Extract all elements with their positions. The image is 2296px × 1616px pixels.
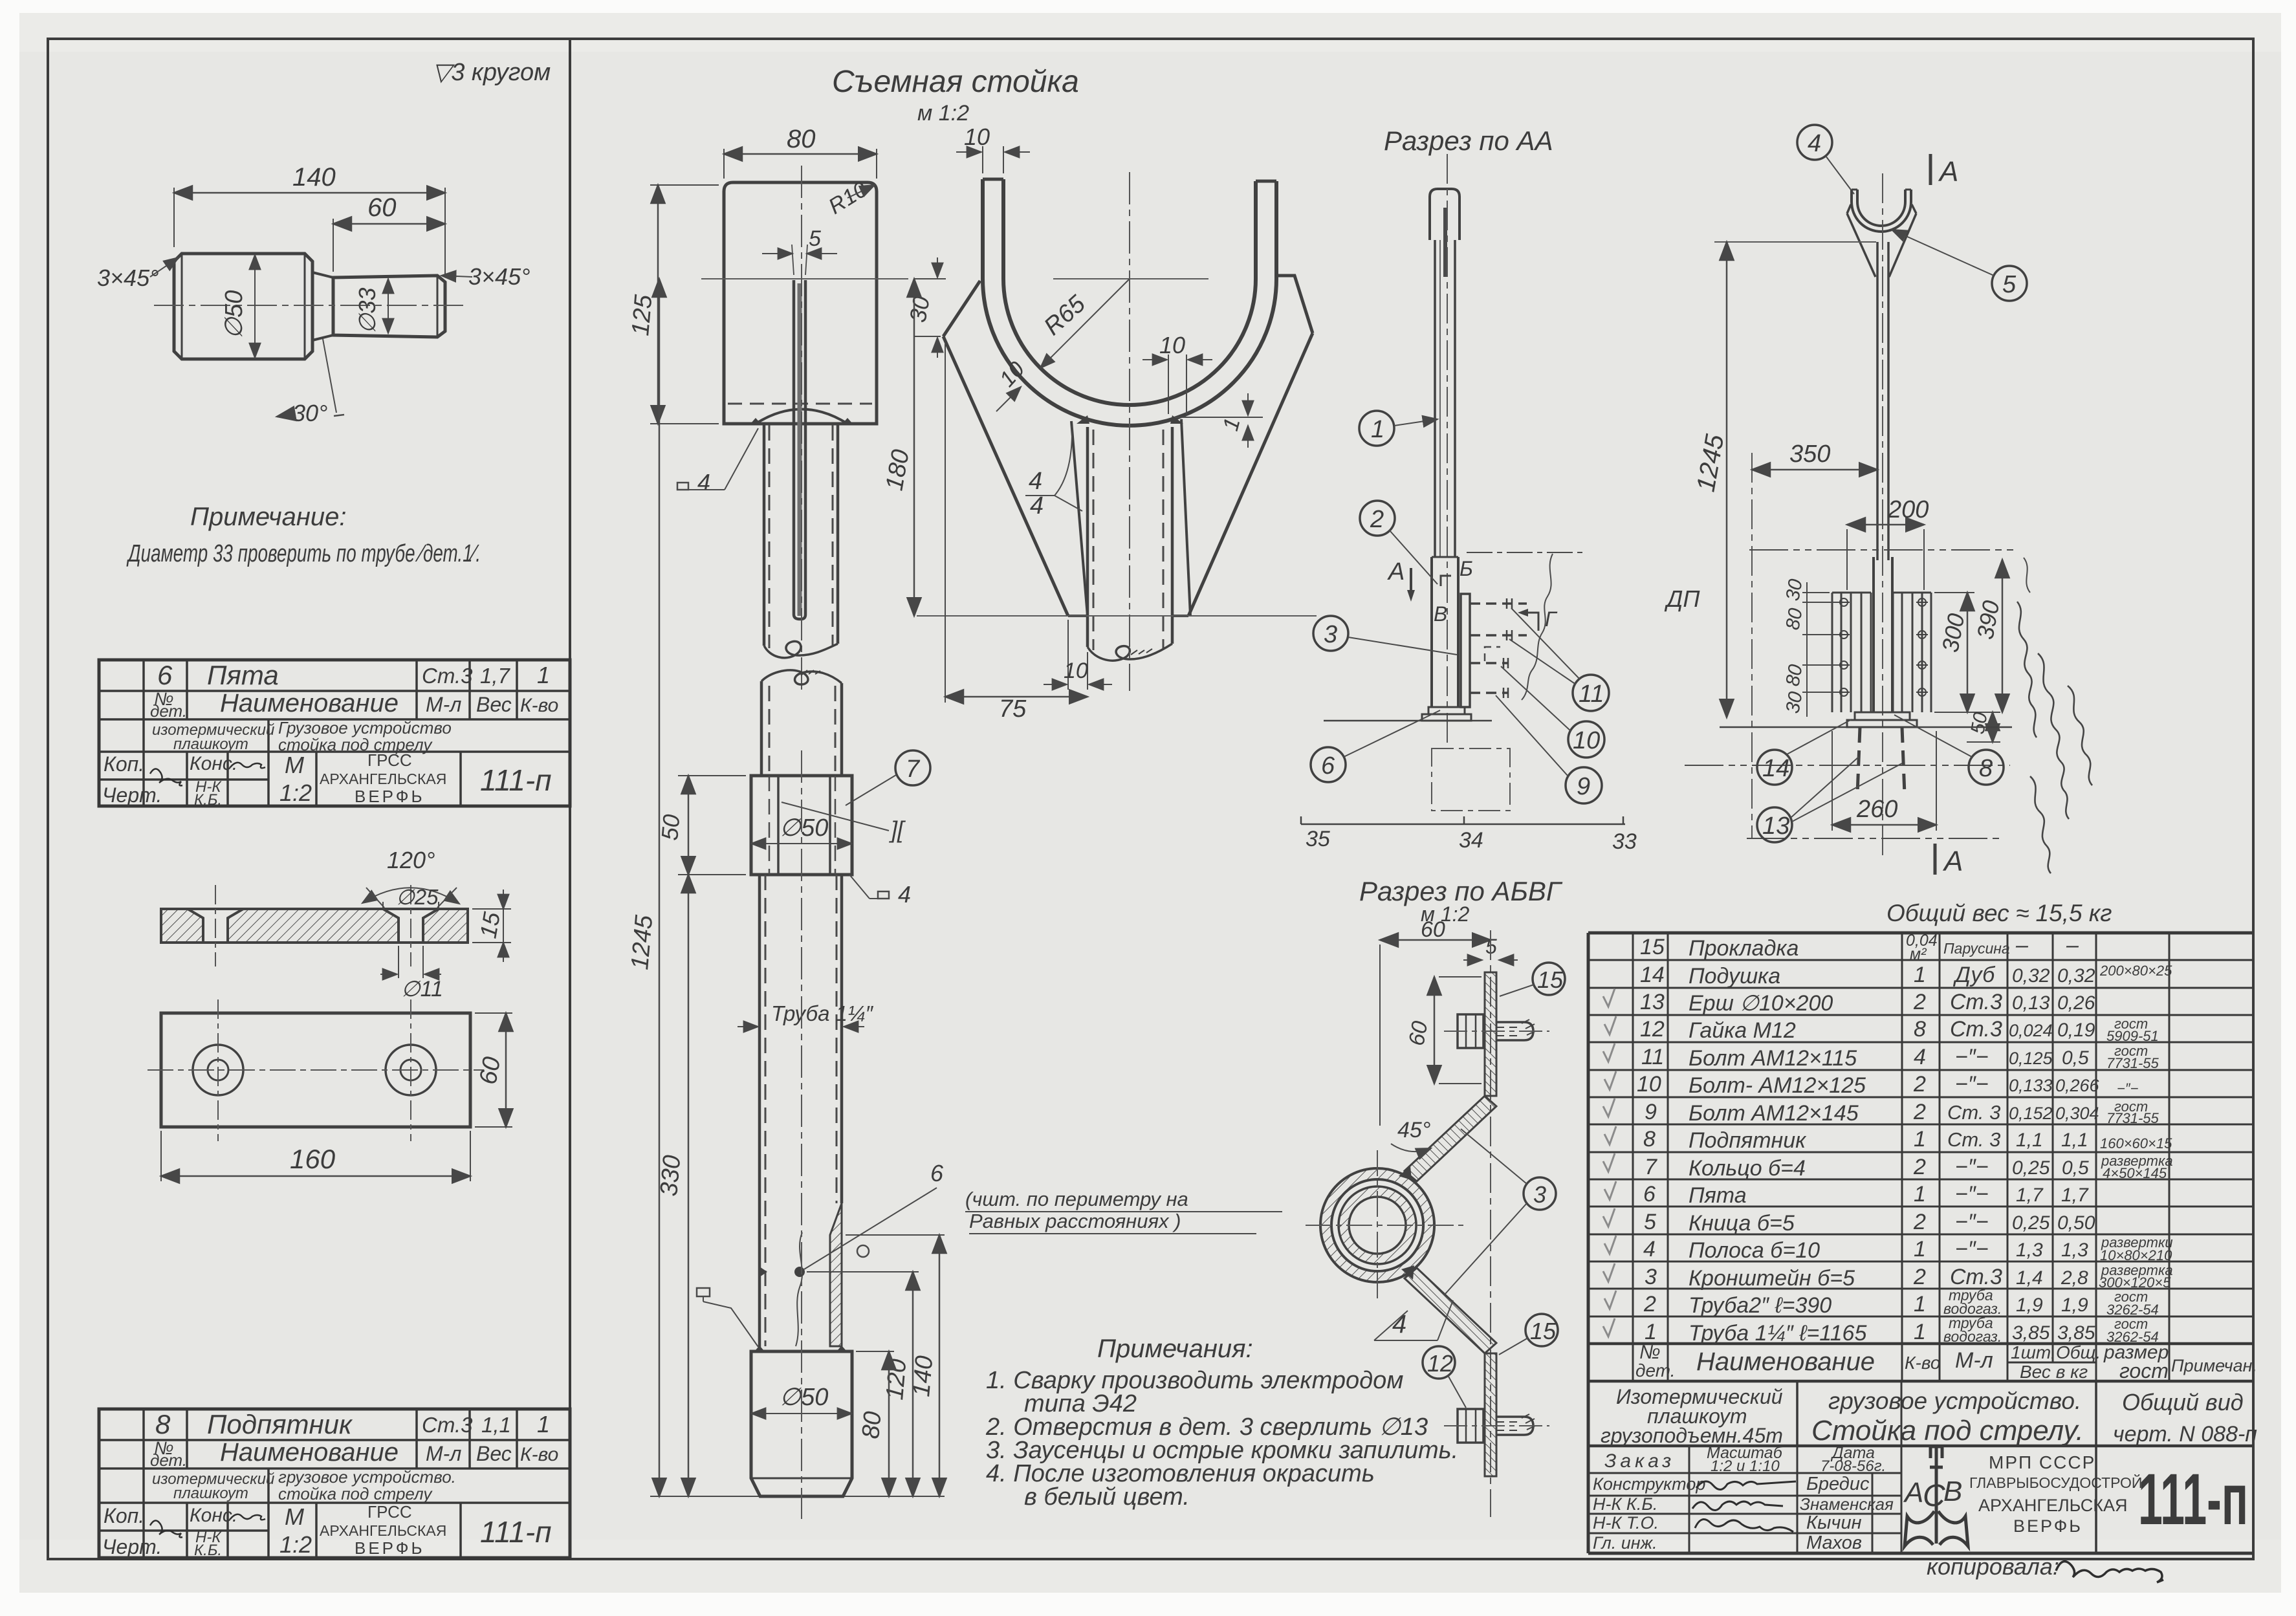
svg-text:2,8: 2,8: [2061, 1267, 2088, 1289]
svg-text:6: 6: [1321, 752, 1335, 780]
svg-text:0,266: 0,266: [2055, 1076, 2100, 1095]
svg-text:Стойка под стрелу.: Стойка под стрелу.: [1811, 1415, 2084, 1447]
svg-text:11: 11: [1641, 1045, 1664, 1069]
svg-text:60: 60: [1404, 1019, 1432, 1047]
svg-text:111-п: 111-п: [480, 1515, 552, 1549]
svg-text:1: 1: [537, 662, 550, 688]
svg-text:0,125: 0,125: [2009, 1049, 2053, 1068]
svg-text:ДП: ДП: [1664, 585, 1700, 612]
svg-text:80: 80: [1782, 606, 1806, 631]
svg-text:3: 3: [1324, 621, 1337, 648]
svg-text:А: А: [1942, 846, 1963, 877]
svg-text:Б: Б: [1460, 557, 1473, 580]
svg-text:−″−: −″−: [1955, 1182, 1989, 1207]
svg-text:7731-55: 7731-55: [2106, 1055, 2159, 1071]
svg-text:4: 4: [1643, 1237, 1656, 1261]
svg-text:7: 7: [906, 756, 921, 783]
svg-text:11: 11: [1579, 681, 1604, 708]
svg-text:черт. N 088-п: черт. N 088-п: [2113, 1422, 2257, 1447]
svg-text:∅50: ∅50: [780, 1384, 828, 1411]
svg-text:Ст.3: Ст.3: [1950, 990, 2002, 1014]
svg-text:0,304: 0,304: [2055, 1104, 2099, 1123]
svg-text:м²: м²: [1910, 945, 1927, 963]
svg-text:стойка под стрелу: стойка под стрелу: [278, 1484, 433, 1503]
svg-text:Общий вид: Общий вид: [2122, 1389, 2244, 1415]
svg-text:м 1:2: м 1:2: [917, 101, 969, 126]
svg-text:Конструктор: Конструктор: [1593, 1474, 1705, 1494]
svg-text:М: М: [285, 752, 304, 778]
svg-text:120°: 120°: [387, 847, 435, 873]
svg-text:111-п: 111-п: [2138, 1459, 2248, 1540]
svg-text:10: 10: [1573, 727, 1600, 754]
svg-text:1,9: 1,9: [2016, 1294, 2043, 1316]
svg-text:В: В: [1434, 602, 1447, 626]
svg-text:дет.: дет.: [150, 701, 187, 721]
svg-text:МРП СССР: МРП СССР: [1989, 1452, 2095, 1472]
svg-text:1:2: 1:2: [279, 1531, 312, 1558]
svg-text:60: 60: [1421, 917, 1445, 942]
svg-text:200×80×25: 200×80×25: [2099, 963, 2172, 979]
svg-text:ВЕРФЬ: ВЕРФЬ: [2013, 1516, 2083, 1536]
svg-text:Подушка: Подушка: [1689, 964, 1780, 988]
svg-text:14: 14: [1762, 755, 1789, 782]
svg-text:1,1: 1,1: [481, 1413, 511, 1437]
svg-text:Наименование: Наименование: [220, 1438, 399, 1467]
svg-text:Г: Г: [1545, 607, 1558, 631]
svg-text:0,152: 0,152: [2009, 1104, 2053, 1123]
svg-text:2: 2: [1643, 1292, 1656, 1316]
svg-text:Вес: Вес: [476, 693, 512, 716]
svg-text:0,50: 0,50: [2057, 1212, 2095, 1234]
svg-text:К.Б.: К.Б.: [194, 1542, 222, 1559]
svg-text:1:2: 1:2: [279, 780, 312, 806]
svg-text:Дуб: Дуб: [1952, 963, 1996, 987]
svg-text:6: 6: [930, 1160, 944, 1186]
svg-text:14: 14: [1640, 963, 1665, 987]
svg-text:Общ.: Общ.: [2056, 1342, 2101, 1362]
svg-text:75: 75: [999, 695, 1027, 723]
svg-text:5: 5: [2002, 271, 2017, 298]
svg-text:350: 350: [1789, 441, 1830, 468]
svg-text:1шт.: 1шт.: [2011, 1342, 2056, 1362]
svg-text:Ст. 3: Ст. 3: [1947, 1101, 2000, 1124]
svg-text:К-во: К-во: [1905, 1353, 1940, 1373]
svg-text:2: 2: [1913, 1265, 1926, 1289]
svg-text:М-л: М-л: [426, 1442, 461, 1465]
svg-text:Примечан.: Примечан.: [2171, 1356, 2257, 1375]
svg-text:3,85: 3,85: [2012, 1322, 2050, 1344]
svg-text:33: 33: [1612, 829, 1637, 854]
svg-text:Пята: Пята: [207, 660, 279, 690]
svg-text:ГРСС: ГРСС: [367, 1502, 412, 1522]
svg-text:1: 1: [1371, 416, 1384, 443]
svg-text:2: 2: [1913, 1155, 1926, 1179]
svg-text:К-во: К-во: [520, 1444, 558, 1465]
svg-text:7: 7: [1645, 1155, 1657, 1179]
svg-text:Подпятник: Подпятник: [1689, 1128, 1807, 1153]
svg-text:−″−: −″−: [1955, 1072, 1989, 1097]
svg-text:8: 8: [1914, 1017, 1926, 1042]
svg-text:2: 2: [1370, 506, 1384, 533]
svg-text:А: А: [1938, 156, 1958, 188]
svg-text:0,13: 0,13: [2012, 992, 2050, 1014]
svg-text:Ст.3: Ст.3: [1950, 1265, 2002, 1289]
svg-text:грузовое устройство.: грузовое устройство.: [1828, 1388, 2081, 1414]
svg-text:1,1: 1,1: [2061, 1130, 2088, 1151]
svg-text:ВЕРФЬ: ВЕРФЬ: [355, 787, 425, 806]
svg-text:0,133: 0,133: [2009, 1076, 2053, 1095]
svg-text:копировала:: копировала:: [1927, 1553, 2059, 1580]
svg-text:3: 3: [1533, 1181, 1546, 1208]
svg-text:М: М: [285, 1503, 304, 1530]
svg-text:0,024: 0,024: [2009, 1021, 2053, 1040]
svg-text:0,32: 0,32: [2012, 965, 2050, 987]
svg-text:−″−: −″−: [1955, 1045, 1989, 1069]
svg-text:ГРСС: ГРСС: [367, 750, 412, 770]
svg-text:К-во: К-во: [520, 695, 558, 716]
svg-text:водогаз.: водогаз.: [1943, 1328, 2002, 1345]
svg-text:8: 8: [1643, 1127, 1656, 1152]
svg-text:1: 1: [1645, 1320, 1657, 1344]
svg-text:4: 4: [1914, 1045, 1926, 1069]
svg-text:125: 125: [627, 293, 657, 337]
svg-text:Конс.: Конс.: [190, 1505, 237, 1526]
svg-text:Примечания:: Примечания:: [1097, 1335, 1253, 1363]
svg-text:2: 2: [1913, 1210, 1926, 1234]
svg-text:111-п: 111-п: [480, 763, 552, 797]
svg-text:Разрез по АБВГ: Разрез по АБВГ: [1359, 876, 1563, 906]
svg-text:дет.: дет.: [1635, 1360, 1676, 1381]
svg-text:10: 10: [1064, 659, 1088, 683]
svg-text:Гайка М12: Гайка М12: [1689, 1018, 1796, 1043]
svg-text:Гл. инж.: Гл. инж.: [1593, 1533, 1657, 1553]
svg-text:0,25: 0,25: [2012, 1212, 2050, 1234]
svg-text:1: 1: [1914, 1127, 1926, 1152]
svg-text:0,32: 0,32: [2057, 965, 2095, 987]
svg-text:ВЕРФЬ: ВЕРФЬ: [355, 1538, 425, 1558]
svg-text:плашкоут: плашкоут: [173, 736, 248, 753]
svg-text:1: 1: [537, 1411, 550, 1437]
svg-text:6: 6: [1643, 1182, 1656, 1207]
svg-text:Болт- АМ12×125: Болт- АМ12×125: [1689, 1073, 1866, 1098]
svg-text:0,26: 0,26: [2057, 992, 2095, 1014]
svg-text:5: 5: [1644, 1210, 1656, 1234]
svg-text:1,7: 1,7: [2061, 1185, 2089, 1206]
svg-text:Болт АМ12×115: Болт АМ12×115: [1689, 1046, 1857, 1071]
svg-text:Черт.: Черт.: [102, 1535, 162, 1558]
svg-text:Пята: Пята: [1689, 1183, 1747, 1208]
svg-text:35: 35: [1306, 827, 1330, 851]
svg-text:Вес в кг: Вес в кг: [2020, 1362, 2088, 1382]
svg-text:Труба2″ ℓ=390: Труба2″ ℓ=390: [1689, 1293, 1831, 1318]
svg-text:1,7: 1,7: [480, 664, 511, 688]
svg-text:Труба 1¼″: Труба 1¼″: [771, 1001, 874, 1025]
svg-text:Примечание:: Примечание:: [190, 503, 346, 531]
svg-text:Вес: Вес: [476, 1442, 512, 1465]
svg-text:Наименование: Наименование: [220, 689, 399, 717]
svg-text:Заказ: Заказ: [1604, 1450, 1675, 1472]
svg-text:Кольцо б=4: Кольцо б=4: [1689, 1156, 1806, 1181]
svg-text:50: 50: [1967, 710, 1991, 736]
svg-text:∅50: ∅50: [221, 290, 248, 339]
svg-text:3×45°: 3×45°: [468, 263, 530, 290]
svg-text:80: 80: [857, 1410, 887, 1440]
svg-text:1,3: 1,3: [2061, 1239, 2088, 1261]
svg-text:50: 50: [656, 813, 684, 841]
svg-text:1245: 1245: [626, 913, 658, 971]
svg-text:1:2 и 1:10: 1:2 и 1:10: [1711, 1458, 1780, 1475]
svg-text:80: 80: [787, 125, 816, 153]
svg-text:Коп.: Коп.: [104, 752, 144, 776]
svg-text:Н-К К.Б.: Н-К К.Б.: [1593, 1494, 1657, 1514]
svg-text:30: 30: [904, 294, 935, 325]
svg-text:Н-К Т.О.: Н-К Т.О.: [1593, 1513, 1659, 1533]
svg-text:30: 30: [1782, 690, 1806, 715]
svg-text:Коп.: Коп.: [104, 1504, 144, 1527]
svg-text:15: 15: [1537, 966, 1564, 993]
svg-text:–: –: [2066, 933, 2079, 957]
svg-text:160×60×15: 160×60×15: [2100, 1135, 2172, 1152]
svg-text:15: 15: [1530, 1318, 1557, 1344]
svg-text:Труба 1¼″ ℓ=1165: Труба 1¼″ ℓ=1165: [1689, 1321, 1866, 1346]
svg-text:1,1: 1,1: [2016, 1130, 2043, 1151]
svg-text:140: 140: [292, 163, 336, 191]
svg-text:(чшт. по периметру на: (чшт. по периметру на: [965, 1188, 1188, 1210]
svg-text:60: 60: [475, 1055, 507, 1087]
svg-text:∅25: ∅25: [396, 885, 439, 909]
svg-text:А: А: [1387, 558, 1405, 585]
svg-text:1: 1: [1914, 1182, 1926, 1207]
svg-text:Парусина: Парусина: [1943, 940, 2010, 957]
svg-text:К.Б.: К.Б.: [194, 791, 222, 809]
svg-text:13: 13: [1640, 990, 1665, 1014]
svg-text:Ст. 3: Ст. 3: [1947, 1128, 2000, 1151]
svg-text:ГЛАВРЫБОСУДОСТРОЙ: ГЛАВРЫБОСУДОСТРОЙ: [1969, 1474, 2142, 1491]
svg-text:10: 10: [964, 124, 990, 150]
svg-text:2: 2: [1913, 1072, 1926, 1097]
svg-text:260: 260: [1856, 796, 1897, 823]
svg-text:Черт.: Черт.: [102, 783, 162, 807]
svg-text:1: 1: [1914, 1292, 1926, 1316]
svg-text:Наименование: Наименование: [1696, 1348, 1875, 1376]
svg-text:Ст.3: Ст.3: [422, 1413, 473, 1437]
svg-text:АРХАНГЕЛЬСКАЯ: АРХАНГЕЛЬСКАЯ: [320, 1522, 446, 1539]
svg-text:Полоса б=10: Полоса б=10: [1689, 1238, 1820, 1263]
svg-text:34: 34: [1459, 828, 1483, 853]
svg-text:1: 1: [1914, 1237, 1926, 1261]
svg-text:9: 9: [1645, 1100, 1657, 1124]
svg-text:2: 2: [1913, 1100, 1926, 1124]
svg-text:в белый цвет.: в белый цвет.: [1024, 1483, 1190, 1511]
svg-text:10: 10: [1637, 1072, 1661, 1097]
svg-text:гост: гост: [2119, 1359, 2169, 1382]
svg-text:10×80×210: 10×80×210: [2100, 1247, 2172, 1263]
svg-text:−″−: −″−: [1955, 1210, 1989, 1234]
svg-text:Махов: Махов: [1806, 1533, 1862, 1553]
svg-text:Равных расстояниях ): Равных расстояниях ): [969, 1210, 1181, 1232]
svg-text:Прокладка: Прокладка: [1689, 936, 1799, 961]
svg-text:15: 15: [1640, 935, 1665, 959]
svg-text:12: 12: [1640, 1017, 1665, 1042]
svg-text:4×50×145: 4×50×145: [2103, 1165, 2167, 1181]
svg-text:АРХАНГЕЛЬСКАЯ: АРХАНГЕЛЬСКАЯ: [1978, 1496, 2128, 1515]
svg-text:4: 4: [1808, 130, 1821, 157]
svg-text:Кронштейн б=5: Кронштейн б=5: [1689, 1266, 1855, 1291]
svg-text:−″−: −″−: [1955, 1237, 1989, 1261]
svg-text:15: 15: [475, 910, 506, 941]
svg-text:60: 60: [367, 193, 397, 222]
svg-text:][: ][: [889, 816, 906, 843]
svg-text:дет.: дет.: [150, 1450, 187, 1470]
svg-text:10: 10: [1159, 332, 1185, 358]
svg-text:4: 4: [697, 469, 710, 496]
svg-text:0,5: 0,5: [2062, 1157, 2089, 1179]
svg-text:∅11: ∅11: [401, 977, 443, 1001]
svg-text:Ст.3: Ст.3: [422, 664, 473, 688]
svg-text:Разрез по АА: Разрез по АА: [1384, 126, 1553, 156]
svg-text:−″−: −″−: [1955, 1155, 1989, 1179]
svg-text:1: 1: [1914, 963, 1926, 987]
svg-text:200: 200: [1887, 496, 1929, 523]
svg-text:45°: 45°: [1397, 1118, 1430, 1142]
svg-text:5: 5: [809, 226, 821, 251]
svg-text:М-л: М-л: [1955, 1348, 1993, 1373]
svg-text:1: 1: [1914, 1320, 1926, 1344]
svg-text:Конс.: Конс.: [190, 753, 237, 774]
svg-text:В: В: [1943, 1476, 1962, 1507]
svg-text:3,85: 3,85: [2057, 1322, 2095, 1344]
svg-text:4: 4: [1030, 492, 1044, 519]
svg-text:120: 120: [881, 1358, 912, 1401]
svg-text:∅50: ∅50: [780, 814, 828, 842]
svg-text:4: 4: [898, 881, 911, 908]
svg-text:80: 80: [1782, 662, 1806, 688]
svg-text:0,25: 0,25: [2012, 1157, 2050, 1179]
svg-text:160: 160: [290, 1144, 336, 1174]
svg-text:1,3: 1,3: [2016, 1239, 2043, 1261]
svg-text:5909-51: 5909-51: [2106, 1028, 2159, 1044]
svg-text:Кница б=5: Кница б=5: [1689, 1211, 1795, 1236]
svg-text:Знаменская: Знаменская: [1800, 1494, 1894, 1514]
svg-text:1,9: 1,9: [2061, 1294, 2088, 1316]
svg-text:Подпятник: Подпятник: [207, 1409, 353, 1439]
svg-text:–: –: [2015, 933, 2029, 957]
svg-text:6: 6: [157, 660, 173, 690]
svg-text:8: 8: [1979, 755, 1993, 782]
svg-text:4: 4: [1029, 468, 1042, 495]
svg-text:Съемная стойка: Съемная стойка: [832, 65, 1079, 99]
svg-text:Ерш ∅10×200: Ерш ∅10×200: [1689, 991, 1833, 1016]
svg-text:9: 9: [1577, 773, 1590, 800]
svg-text:Диаметр 33 проверить по трубе: Диаметр 33 проверить по трубе ∕дет.1∕.: [126, 540, 481, 567]
svg-text:М-л: М-л: [426, 693, 461, 716]
svg-text:плашкоут: плашкоут: [173, 1485, 248, 1502]
svg-text:0,19: 0,19: [2057, 1020, 2095, 1041]
svg-text:1,4: 1,4: [2016, 1267, 2043, 1289]
svg-text:30°: 30°: [292, 400, 327, 426]
svg-text:Общий вес ≈ 15,5 кг: Общий вес ≈ 15,5 кг: [1886, 900, 2112, 926]
svg-text:3×45°: 3×45°: [97, 265, 159, 291]
svg-text:Бредис: Бредис: [1806, 1474, 1870, 1494]
svg-text:0,5: 0,5: [2062, 1047, 2089, 1069]
svg-text:Кычин: Кычин: [1806, 1512, 1862, 1533]
svg-text:7-08-56г.: 7-08-56г.: [1820, 1458, 1886, 1475]
svg-text:1,7: 1,7: [2016, 1185, 2044, 1206]
svg-text:Ст.3: Ст.3: [1950, 1017, 2002, 1042]
svg-text:12: 12: [1427, 1350, 1453, 1377]
svg-text:С: С: [1923, 1479, 1945, 1513]
svg-text:АРХАНГЕЛЬСКАЯ: АРХАНГЕЛЬСКАЯ: [320, 770, 446, 787]
svg-text:2: 2: [1913, 990, 1926, 1014]
svg-text:Болт АМ12×145: Болт АМ12×145: [1689, 1101, 1859, 1126]
svg-text:30: 30: [1782, 577, 1806, 602]
svg-text:∅33: ∅33: [354, 288, 380, 334]
svg-text:3: 3: [1645, 1265, 1657, 1289]
svg-text:8: 8: [155, 1409, 171, 1439]
svg-text:7731-55: 7731-55: [2106, 1110, 2159, 1126]
svg-text:13: 13: [1762, 813, 1789, 840]
svg-text:−″−: −″−: [2117, 1080, 2139, 1097]
svg-text:▽3 кругом: ▽3 кругом: [432, 59, 551, 86]
svg-text:А: А: [1903, 1477, 1923, 1509]
